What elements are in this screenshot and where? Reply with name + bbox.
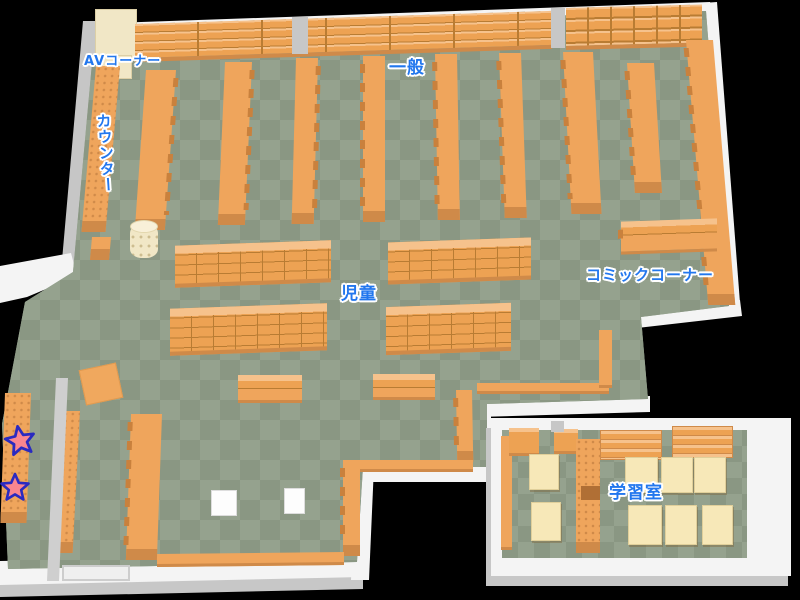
bookshelf — [600, 430, 662, 460]
wall-bookshelf — [360, 460, 473, 472]
star-icon — [1, 421, 38, 458]
area-label-study-room: 学習室 — [609, 485, 663, 503]
low-bookshelf — [170, 303, 327, 355]
entrance-door — [62, 565, 130, 581]
low-bookshelf — [388, 238, 531, 285]
wall-bookshelf — [599, 330, 612, 388]
pillar — [551, 421, 564, 432]
bookshelf — [509, 428, 539, 456]
bookshelf — [435, 54, 460, 220]
study-desk — [694, 457, 726, 493]
study-desk — [529, 454, 559, 490]
bookshelf — [672, 426, 733, 458]
bookshelf — [126, 414, 162, 560]
table — [284, 488, 305, 514]
picture-book-rack — [373, 374, 435, 400]
map-marker — [1, 421, 38, 458]
divider-gap — [581, 486, 600, 500]
bookshelf — [343, 460, 360, 556]
study-desk — [531, 502, 561, 541]
area-label-children: 児童 — [341, 286, 377, 304]
bookshelf — [554, 429, 578, 454]
wall-bookshelf — [566, 4, 702, 50]
study-desk — [628, 505, 662, 545]
pillar — [551, 8, 565, 48]
star-icon — [0, 472, 30, 502]
map-marker — [0, 472, 30, 502]
low-bookshelf — [175, 240, 331, 287]
pillar — [292, 17, 308, 54]
bookshelf — [90, 237, 111, 260]
magazine-shelf — [0, 393, 31, 523]
table — [211, 490, 237, 516]
area-label-comic-corner: コミックコーナー — [586, 268, 714, 284]
area-label-av-corner: AVコーナー — [84, 55, 161, 69]
comic-bookshelf — [621, 218, 717, 254]
bookshelf — [363, 56, 385, 222]
reading-table — [79, 362, 124, 405]
study-desk — [665, 505, 697, 545]
wall-bookshelf — [477, 383, 609, 394]
av-counter — [95, 9, 137, 59]
bookshelf — [218, 62, 252, 225]
wall-bookshelf — [157, 552, 344, 567]
area-label-general: 一般 — [389, 60, 425, 78]
round-book-rack — [130, 224, 158, 258]
study-desk — [661, 457, 693, 493]
bookshelf — [456, 390, 473, 462]
study-desk — [702, 505, 733, 545]
bookshelf — [292, 58, 318, 224]
picture-book-rack — [238, 375, 302, 403]
library-floor-map: AVコーナー カウンター 一般 児童 コミックコーナー 学習室 — [0, 0, 800, 600]
low-bookshelf — [386, 303, 511, 355]
